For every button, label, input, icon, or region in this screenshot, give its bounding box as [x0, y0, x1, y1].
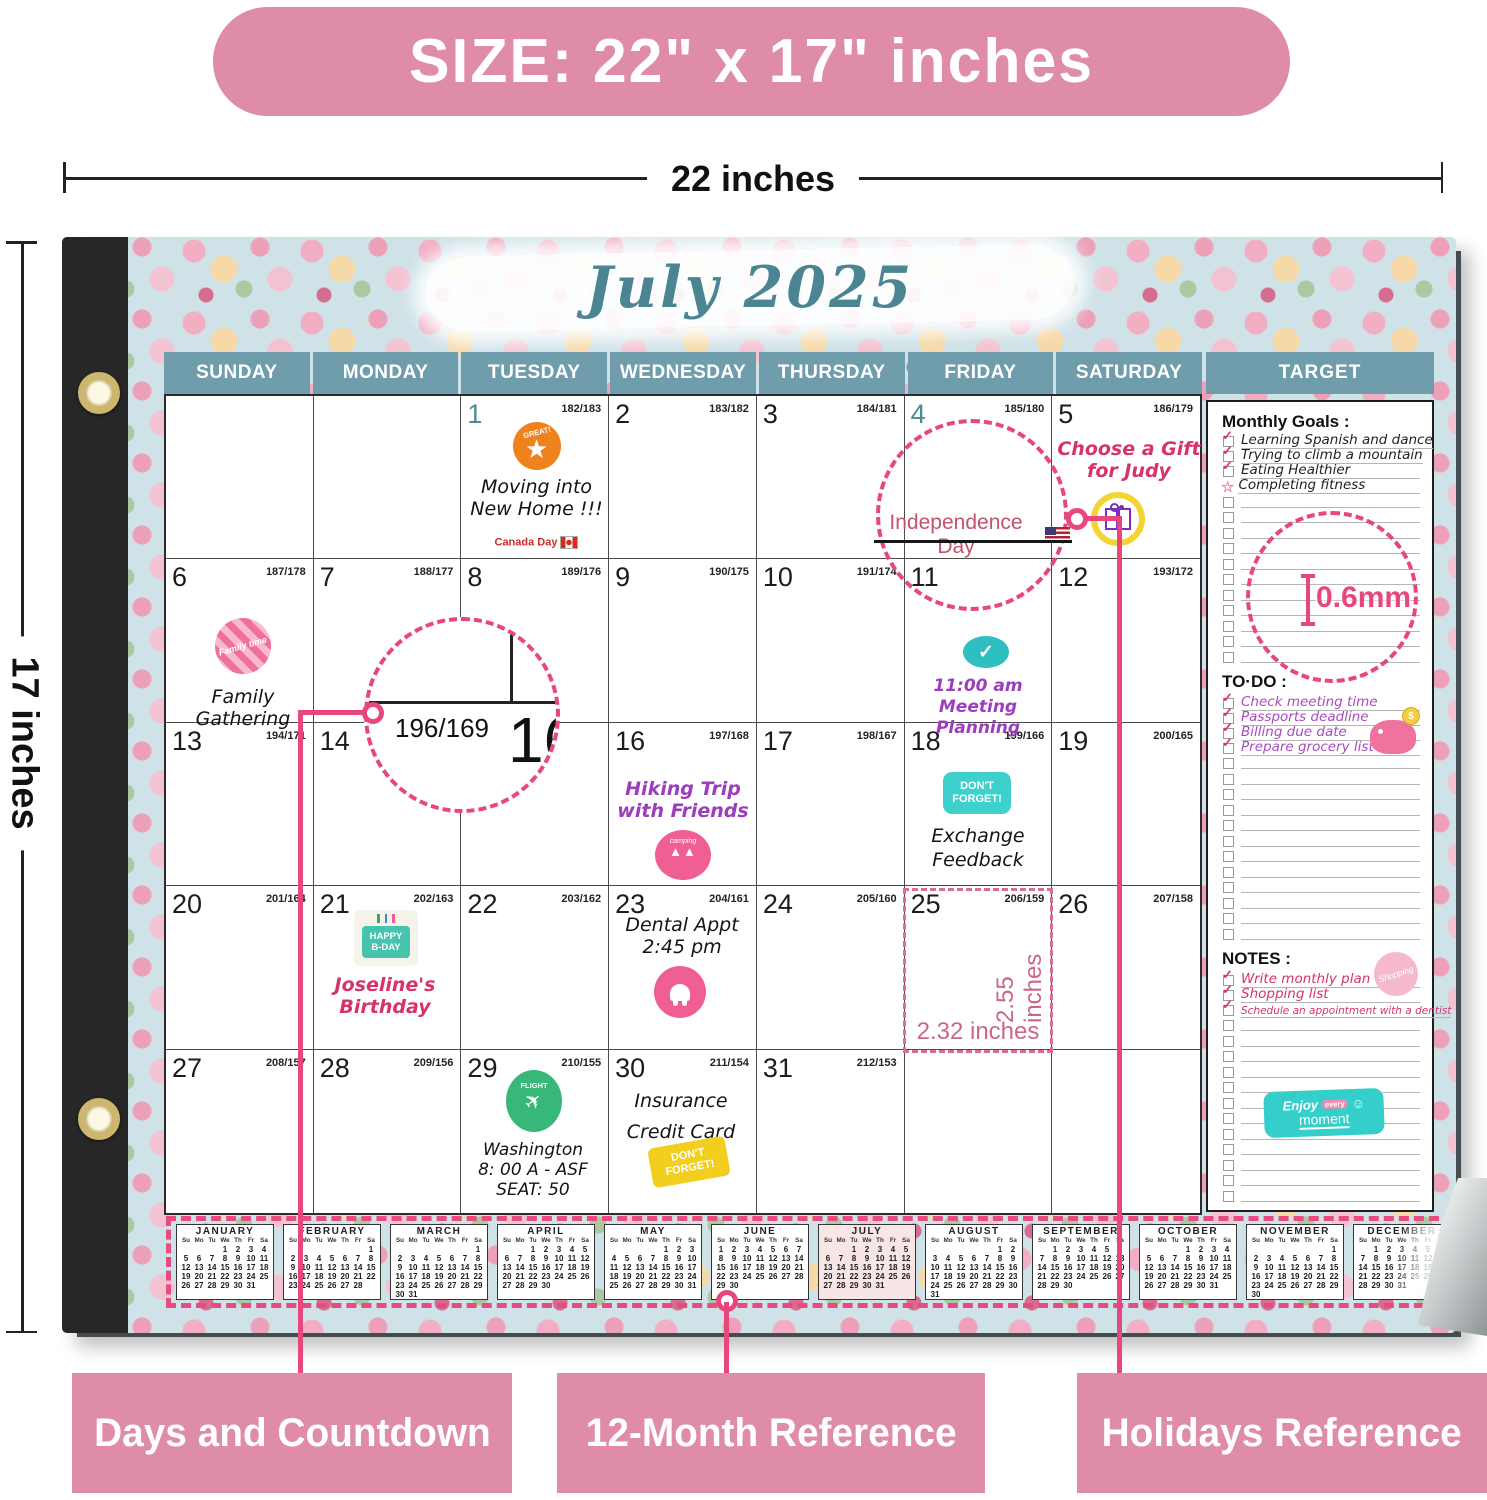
mini-day: 29 — [1182, 1281, 1195, 1290]
mini-day — [501, 1245, 514, 1254]
cake-label: HAPPYB-DAY — [362, 926, 410, 958]
mini-day: 3 — [407, 1254, 420, 1263]
mini-week-row: 3031 — [393, 1290, 485, 1299]
mini-day: 27 — [822, 1281, 835, 1290]
checkbox-icon: ✓ — [1223, 743, 1234, 754]
mini-day: 11 — [566, 1254, 579, 1263]
checklist-row — [1222, 926, 1420, 942]
mini-day: 19 — [767, 1263, 780, 1272]
mini-month-name: SEPTEMBER — [1035, 1226, 1127, 1237]
mini-day-label: Fr — [459, 1237, 472, 1245]
mini-day: 12 — [1143, 1263, 1156, 1272]
mini-day: 23 — [540, 1272, 553, 1281]
countdown: 211/154 — [710, 1057, 749, 1069]
day-number: 8 — [467, 562, 482, 592]
checklist-row — [1222, 1064, 1420, 1080]
mini-day — [1075, 1281, 1088, 1290]
mini-day: 3 — [874, 1245, 887, 1254]
mini-day: 19 — [621, 1272, 634, 1281]
mini-day-label: Mo — [835, 1237, 848, 1245]
mini-day: 16 — [1195, 1263, 1208, 1272]
mini-month-name: JUNE — [714, 1226, 806, 1237]
countdown: 188/177 — [414, 566, 454, 578]
mini-day — [1036, 1245, 1049, 1254]
mini-day: 27 — [634, 1281, 647, 1290]
mini-day: 23 — [861, 1272, 874, 1281]
mini-day: 8 — [365, 1254, 378, 1263]
label-12-month-reference: 12-Month Reference — [557, 1373, 985, 1493]
blank-line — [1241, 1185, 1420, 1186]
day-number: 4 — [911, 399, 926, 429]
mini-day: 30 — [673, 1281, 686, 1290]
mini-day: 3 — [1075, 1245, 1088, 1254]
mini-day: 19 — [900, 1263, 913, 1272]
mini-day: 21 — [514, 1272, 527, 1281]
checklist-row — [1222, 494, 1420, 510]
mini-day — [634, 1245, 647, 1254]
mini-day-header: SuMoTuWeThFrSa — [500, 1237, 592, 1245]
text-line: Birthday — [310, 996, 460, 1018]
mini-day: 26 — [767, 1272, 780, 1281]
mini-day: 22 — [715, 1272, 728, 1281]
mini-day-label: Sa — [579, 1237, 592, 1245]
mini-day: 22 — [1370, 1272, 1383, 1281]
target-header: TARGET — [1206, 352, 1434, 394]
star-icon: ★ — [513, 434, 561, 464]
mini-day: 5 — [1101, 1245, 1114, 1254]
mini-day: 13 — [822, 1263, 835, 1272]
mini-day: 15 — [848, 1263, 861, 1272]
thickness-label: 0.6mm — [1316, 581, 1411, 615]
checkbox-icon — [1223, 1113, 1234, 1124]
countdown: 184/181 — [857, 403, 897, 415]
mini-day-label: Mo — [1049, 1237, 1062, 1245]
mini-week-row: 13141516171819 — [821, 1263, 913, 1272]
camping-sticker: camping ▲▲ — [655, 830, 711, 880]
checkbox-icon — [1223, 789, 1234, 800]
mini-day: 20 — [822, 1272, 835, 1281]
mini-day: 17 — [1075, 1263, 1088, 1272]
mini-day: 5 — [326, 1254, 339, 1263]
mini-day — [352, 1245, 365, 1254]
mini-day: 7 — [1357, 1254, 1370, 1263]
mini-day — [741, 1281, 754, 1290]
countdown: 204/161 — [709, 893, 749, 905]
birthday-cake-sticker: HAPPYB-DAY — [354, 910, 418, 966]
checklist-row — [1222, 802, 1420, 818]
mini-day: 25 — [942, 1281, 955, 1290]
mini-day: 24 — [929, 1281, 942, 1290]
mini-day: 29 — [848, 1281, 861, 1290]
mini-day: 8 — [1182, 1254, 1195, 1263]
mini-day: 14 — [1357, 1263, 1370, 1272]
mini-day: 9 — [1250, 1263, 1263, 1272]
mini-day — [1302, 1290, 1315, 1299]
text-line: DON'T — [960, 780, 994, 793]
mini-week-row: 1234 — [1142, 1245, 1234, 1254]
text-line: Insurance — [604, 1086, 758, 1117]
mini-day — [1328, 1290, 1341, 1299]
check-icon: ✓ — [1222, 967, 1233, 983]
mini-day-label: Sa — [258, 1237, 271, 1245]
mini-day: 2 — [1383, 1245, 1396, 1254]
mini-day: 27 — [501, 1281, 514, 1290]
day-number: 29 — [467, 1053, 497, 1083]
mini-day-label: Th — [1302, 1237, 1315, 1245]
mini-day: 14 — [793, 1254, 806, 1263]
calendar-cell: 12193/172 — [1052, 559, 1200, 722]
mini-day: 13 — [1156, 1263, 1169, 1272]
mini-day — [1409, 1281, 1422, 1290]
event-gift-note: Choose a Giftfor Judy — [1054, 438, 1204, 482]
mini-day: 29 — [219, 1281, 232, 1290]
mini-day — [994, 1290, 1007, 1299]
mini-day: 16 — [394, 1272, 407, 1281]
event-birthday-text: Joseline'sBirthday — [310, 974, 460, 1018]
mini-day: 22 — [1182, 1272, 1195, 1281]
mini-week-row: 11121314151617 — [607, 1263, 699, 1272]
mini-day: 8 — [219, 1254, 232, 1263]
checkbox-icon — [1223, 1036, 1234, 1047]
mini-day-label: Tu — [206, 1237, 219, 1245]
mini-week-row: 12345 — [821, 1245, 913, 1254]
mini-day: 1 — [527, 1245, 540, 1254]
mini-day: 1 — [1370, 1245, 1383, 1254]
calendar-cell: 28209/156 — [314, 1050, 462, 1213]
mini-day: 4 — [1088, 1245, 1101, 1254]
mini-day-label: Sa — [1328, 1237, 1341, 1245]
mini-day-label: Mo — [514, 1237, 527, 1245]
mini-day: 23 — [394, 1281, 407, 1290]
day-number: 28 — [320, 1053, 350, 1083]
event-exchange-feedback: ExchangeFeedback — [903, 824, 1053, 872]
mini-day: 5 — [900, 1245, 913, 1254]
checklist-row — [1222, 895, 1420, 911]
mini-day-label: Th — [1088, 1237, 1101, 1245]
mini-day: 17 — [686, 1263, 699, 1272]
mini-day: 24 — [686, 1272, 699, 1281]
checklist-row — [1222, 787, 1420, 803]
countdown: 193/172 — [1153, 566, 1193, 578]
mini-day: 10 — [741, 1254, 754, 1263]
mini-day: 21 — [352, 1272, 365, 1281]
mini-month: MARCHSuMoTuWeThFrSa123456789101112131415… — [390, 1224, 488, 1300]
mini-day: 29 — [1370, 1281, 1383, 1290]
mini-day-label: Fr — [780, 1237, 793, 1245]
checklist-row — [1222, 880, 1420, 896]
mini-day: 17 — [874, 1263, 887, 1272]
mini-day-label: Tu — [848, 1237, 861, 1245]
mini-week-row: 16171819202122 — [1249, 1272, 1341, 1281]
mini-day — [1250, 1245, 1263, 1254]
mini-day-header: SuMoTuWeThFrSa — [928, 1237, 1020, 1245]
mini-day: 3 — [1396, 1245, 1409, 1254]
mini-day: 30 — [1250, 1290, 1263, 1299]
mini-week-row: 78910111213 — [1035, 1254, 1127, 1263]
mini-day: 14 — [981, 1263, 994, 1272]
mini-day: 11 — [1221, 1254, 1234, 1263]
mini-day-label: Su — [608, 1237, 621, 1245]
magnified-countdown: 196/169 — [374, 713, 510, 744]
checklist-row — [1222, 833, 1420, 849]
checklist-row — [1222, 1173, 1420, 1189]
mini-day: 2 — [673, 1245, 686, 1254]
mini-day: 18 — [942, 1272, 955, 1281]
text-line: with Friends — [608, 800, 758, 822]
checkbox-icon — [1223, 1191, 1234, 1202]
mini-day-label: Fr — [245, 1237, 258, 1245]
checkbox-icon — [1223, 1020, 1234, 1031]
mini-day: 13 — [501, 1263, 514, 1272]
mini-day-header: SuMoTuWeThFrSa — [821, 1237, 913, 1245]
height-tick-bottom — [6, 1331, 37, 1334]
mini-day — [459, 1290, 472, 1299]
day-header: MONDAY — [313, 352, 459, 394]
mini-day: 9 — [673, 1254, 686, 1263]
mini-day: 10 — [686, 1254, 699, 1263]
mini-day: 5 — [1289, 1254, 1302, 1263]
mini-day: 24 — [407, 1281, 420, 1290]
label-12-month-reference-text: 12-Month Reference — [586, 1411, 957, 1456]
size-banner: SIZE: 22" x 17" inches — [213, 7, 1290, 116]
event-family-gathering: Family time FamilyGathering — [178, 618, 308, 730]
checkbox-icon — [1223, 636, 1234, 647]
mini-day: 25 — [313, 1281, 326, 1290]
mini-day-label: Su — [715, 1237, 728, 1245]
day-number: 19 — [1058, 726, 1088, 756]
event-dental-text: Dental Appt2:45 pm — [606, 914, 758, 958]
day-number: 21 — [320, 889, 350, 919]
mini-month: JANUARYSuMoTuWeThFrSa1234567891011121314… — [176, 1224, 274, 1300]
text-line: B-DAY — [371, 942, 400, 953]
blank-line — [1241, 939, 1420, 940]
mini-day-header: SuMoTuWeThFrSa — [714, 1237, 806, 1245]
mini-day-label: Mo — [1263, 1237, 1276, 1245]
mini-day: 2 — [232, 1245, 245, 1254]
mini-day: 15 — [527, 1263, 540, 1272]
mini-day: 21 — [793, 1263, 806, 1272]
calendar-cell: 19200/165 — [1052, 723, 1200, 886]
mini-day: 7 — [793, 1245, 806, 1254]
mini-day-header: SuMoTuWeThFrSa — [1142, 1237, 1234, 1245]
mini-day: 12 — [621, 1263, 634, 1272]
mini-week-row: 13141516171819 — [500, 1263, 592, 1272]
dont-forget-sticker-teal: DON'TFORGET! — [943, 772, 1011, 814]
mini-day: 9 — [861, 1254, 874, 1263]
blank-line — [1241, 784, 1420, 785]
blank-line — [1241, 861, 1420, 862]
event-birthday: Joseline'sBirthday — [310, 974, 460, 1018]
checkbox-icon — [1223, 528, 1234, 539]
mini-week-row: 9101112131415 — [1249, 1263, 1341, 1272]
check-icon: ✓ — [1222, 982, 1233, 998]
family-time-label: Family time — [218, 634, 268, 657]
shopping-sticker: Shopping — [1374, 952, 1418, 996]
mini-day-label: Su — [501, 1237, 514, 1245]
mini-day: 8 — [1049, 1254, 1062, 1263]
mini-day: 4 — [1276, 1254, 1289, 1263]
mini-day: 19 — [955, 1272, 968, 1281]
mini-day: 25 — [1276, 1281, 1289, 1290]
mini-day: 2 — [728, 1245, 741, 1254]
blank-line — [1241, 815, 1420, 816]
blank-line — [1241, 830, 1420, 831]
mini-month-name: APRIL — [500, 1226, 592, 1237]
mini-day-label: We — [647, 1237, 660, 1245]
mini-day: 14 — [514, 1263, 527, 1272]
mini-day — [981, 1290, 994, 1299]
thickness-measure-icon — [1306, 574, 1310, 626]
mini-day-header: SuMoTuWeThFrSa — [179, 1237, 271, 1245]
mini-day: 23 — [1007, 1272, 1020, 1281]
mini-day: 28 — [1315, 1281, 1328, 1290]
mini-day: 3 — [1208, 1245, 1221, 1254]
monthly-goals-title: Monthly Goals : — [1222, 412, 1420, 434]
mini-day: 7 — [352, 1254, 365, 1263]
mini-day: 26 — [180, 1281, 193, 1290]
mini-week-row: 1 — [393, 1245, 485, 1254]
event-meeting-text: 11:00 amMeeting Planning — [902, 676, 1054, 739]
connector-line-countdown-v — [298, 710, 303, 1373]
mini-day-label: We — [1396, 1237, 1409, 1245]
mini-week-row: 24252627282930 — [928, 1281, 1020, 1290]
mini-day-header: SuMoTuWeThFrSa — [1356, 1237, 1448, 1245]
mini-day — [407, 1245, 420, 1254]
mini-day: 10 — [1396, 1254, 1409, 1263]
todo-blank-lines — [1222, 756, 1420, 942]
mini-day: 17 — [1396, 1263, 1409, 1272]
mini-day-label: Tu — [1169, 1237, 1182, 1245]
mini-day: 3 — [929, 1254, 942, 1263]
mini-day: 13 — [780, 1254, 793, 1263]
checkbox-icon — [1223, 559, 1234, 570]
tooth-icon — [670, 984, 690, 1001]
mini-day: 4 — [313, 1254, 326, 1263]
day-number: 31 — [763, 1053, 793, 1083]
text-line: HAPPY — [370, 931, 403, 942]
mini-day-label: Tu — [527, 1237, 540, 1245]
mini-week-row: 22232425262728 — [714, 1272, 806, 1281]
mini-day — [1357, 1245, 1370, 1254]
mini-day — [553, 1281, 566, 1290]
mini-day: 17 — [553, 1263, 566, 1272]
mini-day: 12 — [955, 1263, 968, 1272]
mini-day: 26 — [1101, 1272, 1114, 1281]
magnifier-grid-line-v — [510, 621, 513, 701]
mini-day: 31 — [245, 1281, 258, 1290]
mini-day: 1 — [472, 1245, 485, 1254]
mini-day: 6 — [501, 1254, 514, 1263]
blank-line — [1241, 923, 1420, 924]
mini-day: 30 — [1195, 1281, 1208, 1290]
tents-icon: ▲▲ — [655, 845, 711, 858]
mini-day: 11 — [754, 1254, 767, 1263]
calendar-cell: 20201/164 — [166, 886, 314, 1049]
mini-day: 5 — [621, 1254, 634, 1263]
mini-day-label: Fr — [352, 1237, 365, 1245]
mini-day-label: Su — [929, 1237, 942, 1245]
day-number: 13 — [172, 726, 202, 756]
moment-word-2: every — [1322, 1099, 1348, 1109]
mini-day: 10 — [929, 1263, 942, 1272]
connector-line-months-v — [724, 1302, 729, 1373]
mini-day: 25 — [1409, 1272, 1422, 1281]
label-days-countdown-text: Days and Countdown — [94, 1411, 491, 1456]
mini-day: 22 — [527, 1272, 540, 1281]
event-exchange-text: ExchangeFeedback — [903, 824, 1053, 872]
mini-day: 2 — [1195, 1245, 1208, 1254]
mini-day: 23 — [1195, 1272, 1208, 1281]
countdown: 198/167 — [857, 730, 897, 742]
calendar-cell: 10191/174 — [757, 559, 905, 722]
canada-day-text: Canada Day — [495, 536, 558, 548]
mini-day-label: Th — [660, 1237, 673, 1245]
mini-day: 17 — [1208, 1263, 1221, 1272]
mini-day: 15 — [1328, 1263, 1341, 1272]
mini-week-row: 123456 — [1035, 1245, 1127, 1254]
label-holidays-reference: Holidays Reference — [1077, 1373, 1487, 1493]
countdown: 187/178 — [266, 566, 306, 578]
connector-line-countdown-h — [298, 710, 366, 715]
mini-week-row: 282930 — [1035, 1281, 1127, 1290]
text-line: Exchange — [903, 824, 1053, 848]
mini-day: 24 — [1075, 1272, 1088, 1281]
checkbox-icon — [1223, 1082, 1234, 1093]
mini-month: JUNESuMoTuWeThFrSa1234567891011121314151… — [711, 1224, 809, 1300]
mini-day — [339, 1245, 352, 1254]
text-line: Washington — [448, 1140, 618, 1160]
mini-day: 23 — [673, 1272, 686, 1281]
mini-day: 29 — [715, 1281, 728, 1290]
mini-day: 19 — [579, 1263, 592, 1272]
mini-month-name: NOVEMBER — [1249, 1226, 1341, 1237]
mini-day: 21 — [1169, 1272, 1182, 1281]
blank-line — [1241, 1077, 1420, 1078]
day-number: 2 — [615, 399, 630, 429]
mini-week-row: 9101112131415 — [393, 1263, 485, 1272]
mini-day: 7 — [835, 1254, 848, 1263]
mini-week-row: 15161718192021 — [714, 1263, 806, 1272]
text-line: Dental Appt — [606, 914, 758, 936]
mini-day — [365, 1281, 378, 1290]
checklist-row — [1222, 771, 1420, 787]
mini-week-row: 23242526272829 — [393, 1281, 485, 1290]
checkbox-icon — [1223, 774, 1234, 785]
mini-day: 6 — [780, 1245, 793, 1254]
mini-month-name: MAY — [607, 1226, 699, 1237]
checkbox-icon — [1223, 836, 1234, 847]
mini-day: 27 — [780, 1272, 793, 1281]
mini-day: 16 — [861, 1263, 874, 1272]
mini-day: 23 — [1250, 1281, 1263, 1290]
mini-day — [793, 1281, 806, 1290]
mini-day: 23 — [728, 1272, 741, 1281]
mini-day — [579, 1281, 592, 1290]
mini-day: 21 — [835, 1272, 848, 1281]
mini-day: 1 — [660, 1245, 673, 1254]
day-number: 17 — [763, 726, 793, 756]
mini-day-label: Su — [180, 1237, 193, 1245]
calendar-cell: 17198/167 — [757, 723, 905, 886]
mini-day-label: Th — [232, 1237, 245, 1245]
mini-day — [822, 1245, 835, 1254]
mini-day: 7 — [459, 1254, 472, 1263]
mini-day: 23 — [1062, 1272, 1075, 1281]
mini-day-header: SuMoTuWeThFrSa — [1035, 1237, 1127, 1245]
mini-day: 16 — [673, 1263, 686, 1272]
mini-week-row: 6789101112 — [500, 1254, 592, 1263]
mini-day-label: We — [1075, 1237, 1088, 1245]
